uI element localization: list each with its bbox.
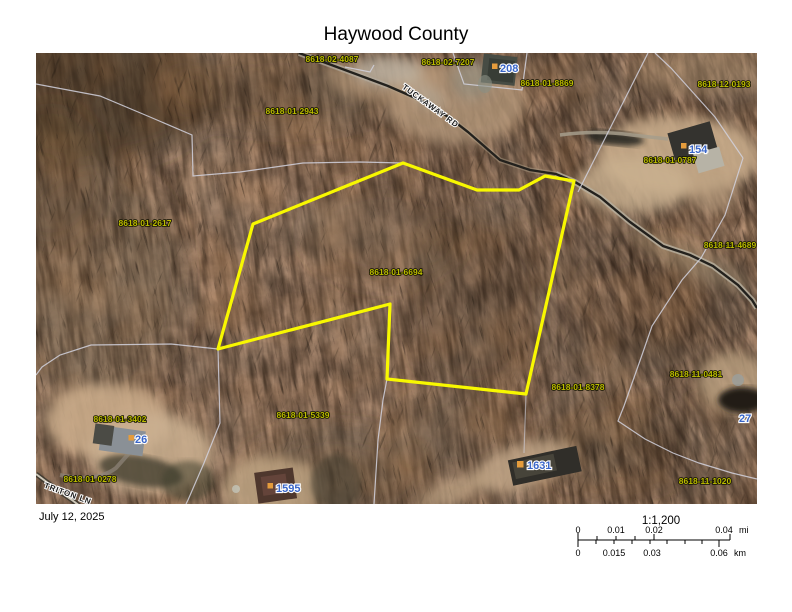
svg-text:8618-01-6694: 8618-01-6694 [370, 267, 423, 277]
svg-text:8618-02-4087: 8618-02-4087 [306, 54, 359, 64]
svg-text:8618-11-1020: 8618-11-1020 [679, 476, 732, 486]
svg-text:26: 26 [135, 434, 147, 446]
svg-text:0.06: 0.06 [710, 548, 728, 558]
svg-text:27: 27 [739, 413, 751, 425]
svg-text:8618-01-8869: 8618-01-8869 [521, 78, 574, 88]
svg-text:8618-01-8378: 8618-01-8378 [552, 382, 605, 392]
svg-text:154: 154 [689, 144, 708, 156]
svg-text:8618-01-0787: 8618-01-0787 [644, 155, 697, 165]
svg-text:0.015: 0.015 [603, 548, 626, 558]
svg-text:8618-01-0278: 8618-01-0278 [64, 474, 117, 484]
svg-text:8618-02-7207: 8618-02-7207 [422, 57, 475, 67]
svg-text:8618-12-0193: 8618-12-0193 [698, 79, 751, 89]
svg-text:8618-01-5339: 8618-01-5339 [277, 410, 330, 420]
svg-text:1595: 1595 [276, 483, 300, 495]
svg-text:0.01: 0.01 [607, 525, 625, 535]
svg-text:km: km [734, 548, 746, 558]
svg-text:0.03: 0.03 [643, 548, 661, 558]
svg-text:8618-11-4689: 8618-11-4689 [704, 240, 757, 250]
svg-text:8618-01-2943: 8618-01-2943 [266, 106, 319, 116]
svg-text:8618-11-0481: 8618-11-0481 [670, 369, 723, 379]
svg-text:0: 0 [575, 548, 580, 558]
svg-text:8618-01-3402: 8618-01-3402 [94, 414, 147, 424]
svg-text:0.02: 0.02 [645, 525, 663, 535]
svg-text:0.04: 0.04 [715, 525, 733, 535]
svg-text:1631: 1631 [527, 460, 551, 472]
svg-text:208: 208 [500, 63, 518, 75]
svg-text:8618-01-2617: 8618-01-2617 [119, 218, 172, 228]
svg-text:mi: mi [739, 525, 749, 535]
